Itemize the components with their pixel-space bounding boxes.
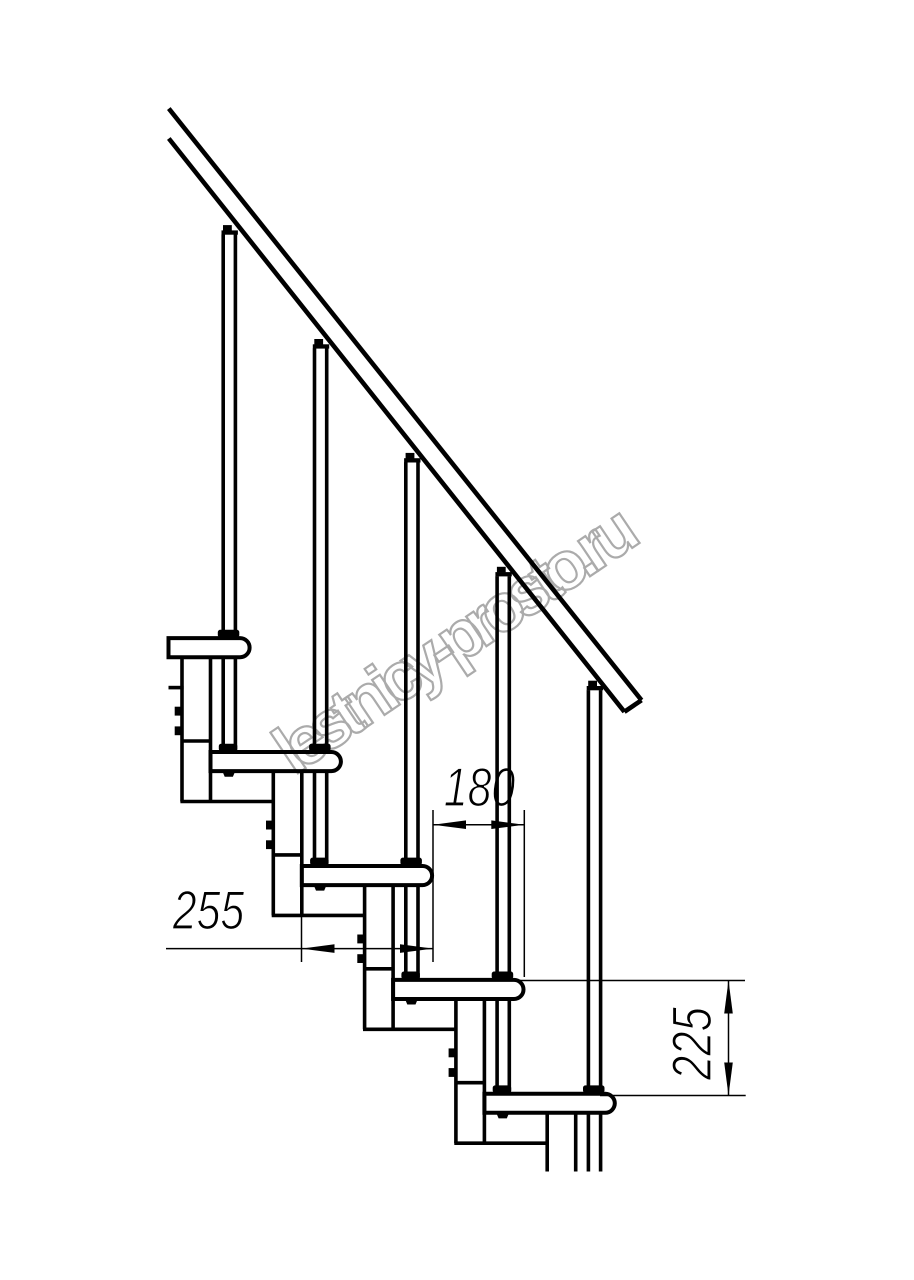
svg-text:180: 180 — [444, 757, 516, 818]
svg-text:225: 225 — [661, 1006, 723, 1081]
svg-text:255: 255 — [172, 880, 245, 941]
